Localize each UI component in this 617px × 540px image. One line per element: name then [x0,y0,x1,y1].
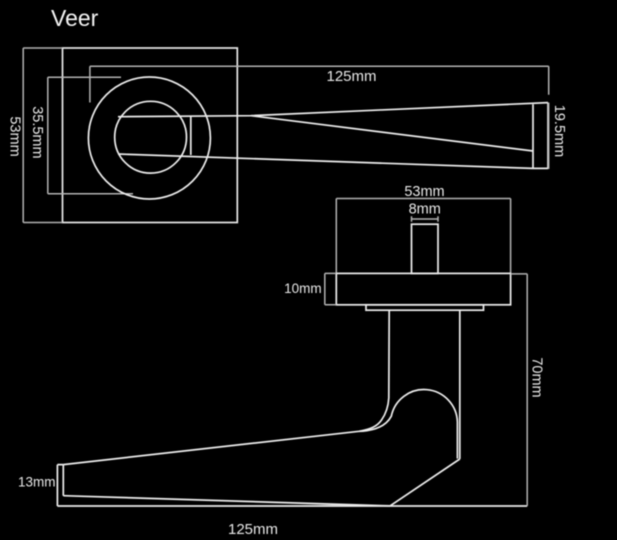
svg-text:35.5mm: 35.5mm [29,106,45,158]
svg-text:53mm: 53mm [7,116,23,156]
svg-text:10mm: 10mm [284,281,322,296]
svg-text:13mm: 13mm [18,474,56,489]
svg-text:19.5mm: 19.5mm [551,105,567,157]
svg-text:53mm: 53mm [404,184,444,200]
svg-text:125mm: 125mm [228,521,278,538]
svg-text:70mm: 70mm [529,357,545,397]
svg-text:125mm: 125mm [326,68,376,85]
svg-text:Veer: Veer [51,5,99,31]
svg-text:8mm: 8mm [409,201,441,217]
